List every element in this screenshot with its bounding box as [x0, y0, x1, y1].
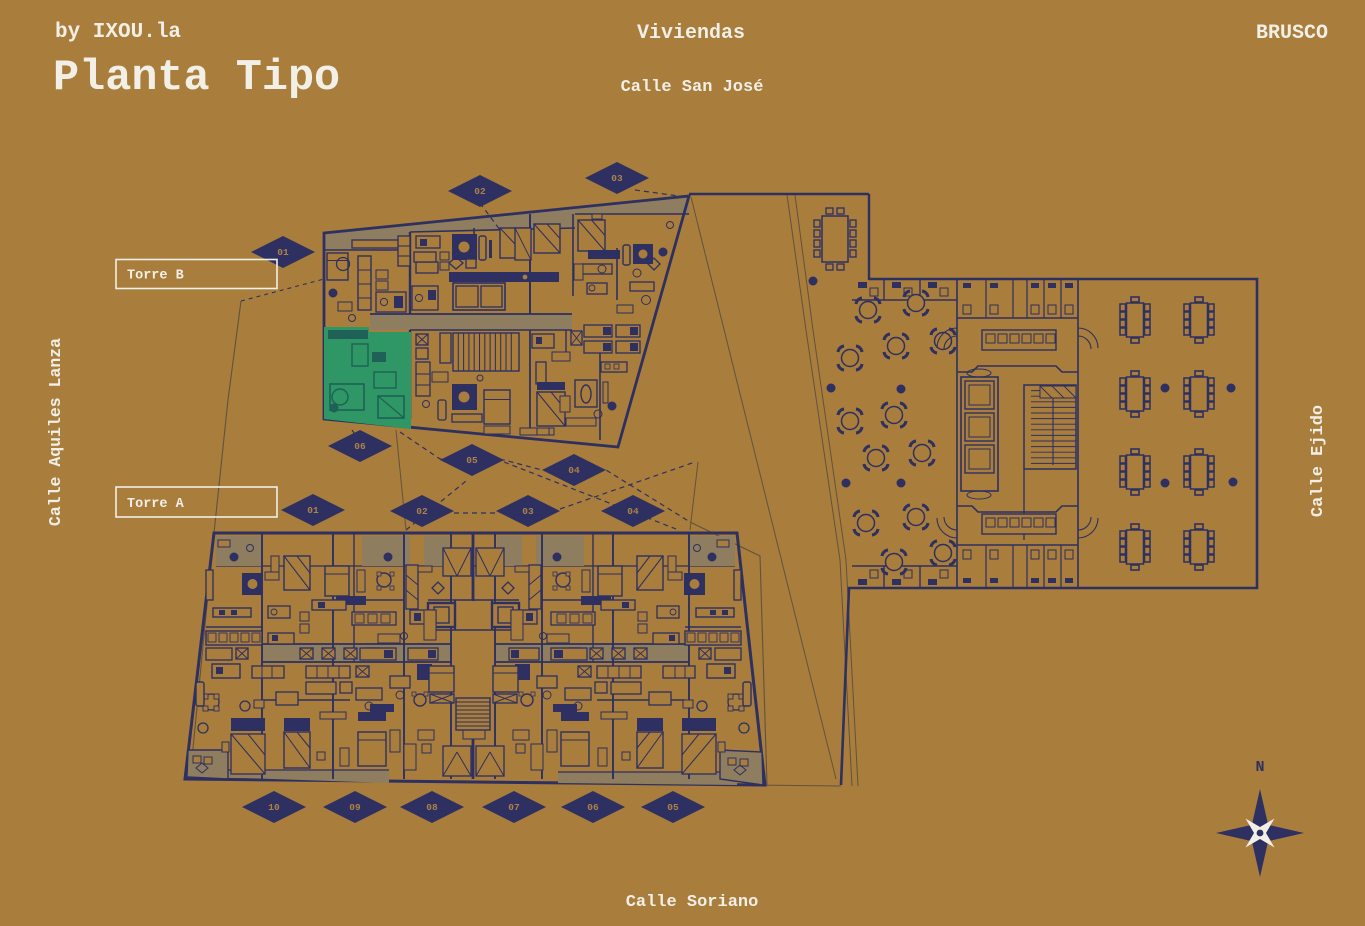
svg-text:04: 04 — [627, 506, 639, 517]
svg-text:07: 07 — [508, 802, 520, 813]
svg-text:Calle Ejido: Calle Ejido — [1309, 405, 1328, 517]
svg-text:Torre A: Torre A — [127, 497, 185, 512]
svg-text:by IXOU.la: by IXOU.la — [55, 21, 181, 44]
svg-text:05: 05 — [667, 802, 679, 813]
svg-text:03: 03 — [611, 173, 623, 184]
svg-text:N: N — [1255, 759, 1264, 776]
svg-text:Calle San José: Calle San José — [621, 78, 764, 97]
svg-text:06: 06 — [354, 441, 366, 452]
svg-text:Calle Soriano: Calle Soriano — [626, 893, 759, 912]
svg-text:BRUSCO: BRUSCO — [1256, 22, 1328, 45]
svg-text:04: 04 — [568, 465, 580, 476]
svg-text:06: 06 — [587, 802, 599, 813]
svg-text:Calle Aquiles Lanza: Calle Aquiles Lanza — [46, 338, 65, 526]
svg-text:Planta Tipo: Planta Tipo — [53, 54, 340, 103]
svg-text:Torre B: Torre B — [127, 269, 184, 284]
svg-text:05: 05 — [466, 455, 478, 466]
svg-text:02: 02 — [474, 186, 486, 197]
svg-text:09: 09 — [349, 802, 361, 813]
svg-text:03: 03 — [522, 506, 534, 517]
svg-text:10: 10 — [268, 802, 280, 813]
svg-text:01: 01 — [307, 505, 319, 516]
svg-text:01: 01 — [277, 247, 289, 258]
svg-text:08: 08 — [426, 802, 438, 813]
svg-text:02: 02 — [416, 506, 428, 517]
svg-text:Viviendas: Viviendas — [637, 22, 745, 45]
